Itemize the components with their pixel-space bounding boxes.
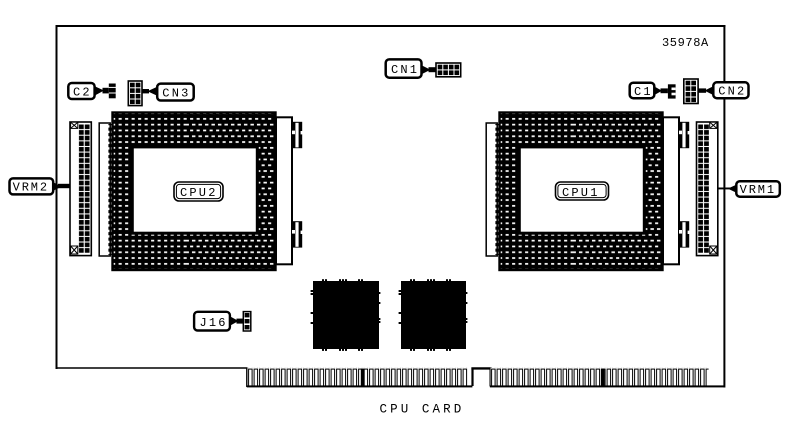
svg-text:C1: C1 [634,85,653,99]
svg-text:VRM1: VRM1 [740,183,776,197]
svg-text:CPU CARD: CPU CARD [380,403,465,417]
svg-text:CN2: CN2 [718,85,746,99]
svg-text:J16: J16 [200,316,228,330]
svg-text:CN1: CN1 [391,63,419,77]
svg-text:CPU1: CPU1 [562,186,600,200]
svg-text:CN3: CN3 [162,86,190,100]
svg-text:C2: C2 [73,85,92,99]
svg-text:CPU2: CPU2 [180,186,218,200]
svg-text:VRM2: VRM2 [13,181,49,195]
svg-text:35978A: 35978A [662,36,709,50]
